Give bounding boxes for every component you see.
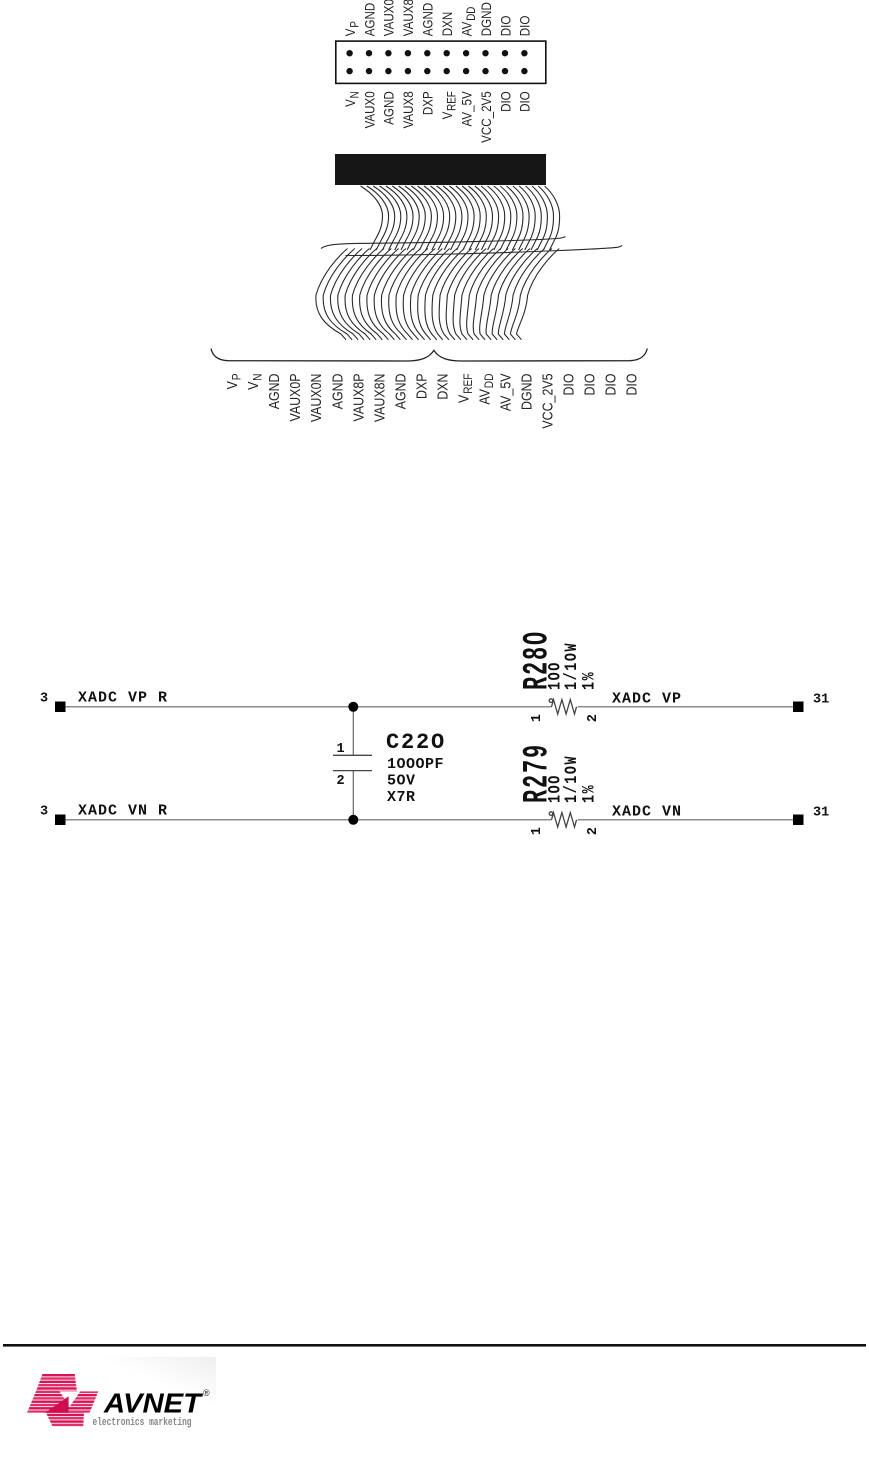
svg-text:VAUX0: VAUX0 (361, 91, 377, 128)
svg-text:VN: VN (342, 91, 362, 107)
svg-text:AV_5V: AV_5V (458, 91, 474, 127)
svg-text:1: 1 (530, 826, 545, 836)
svg-text:XADC VN R: XADC VN R (78, 803, 168, 820)
svg-text:VCC_2V5: VCC_2V5 (539, 373, 555, 428)
svg-text:C22O: C22O (386, 730, 446, 755)
svg-text:VAUX8N: VAUX8N (371, 374, 387, 423)
svg-text:2: 2 (586, 713, 601, 723)
svg-text:DIO: DIO (561, 374, 577, 396)
svg-text:DIO: DIO (603, 374, 619, 396)
svg-text:AGND: AGND (361, 3, 377, 36)
svg-text:1: 1 (337, 742, 345, 757)
svg-text:VCC_2V5: VCC_2V5 (478, 91, 494, 143)
svg-text:VREF: VREF (455, 373, 475, 403)
svg-text:31: 31 (813, 693, 829, 708)
svg-text:®: ® (203, 1388, 210, 1398)
svg-text:VREF: VREF (439, 91, 459, 119)
svg-text:AGND: AGND (381, 91, 397, 124)
svg-text:31: 31 (813, 806, 829, 821)
svg-text:DGND: DGND (518, 373, 534, 410)
svg-text:AGND: AGND (392, 373, 408, 409)
svg-text:1OOOPF: 1OOOPF (387, 756, 444, 773)
svg-text:DGND: DGND (478, 2, 494, 36)
svg-text:VAUX0N: VAUX0N (308, 374, 324, 423)
svg-text:VP: VP (224, 374, 244, 390)
svg-text:DIO: DIO (624, 374, 640, 396)
svg-text:2: 2 (586, 826, 601, 836)
svg-text:3: 3 (40, 692, 48, 707)
svg-text:XADC VP R: XADC VP R (78, 690, 168, 707)
svg-text:VAUX0: VAUX0 (381, 0, 397, 36)
svg-text:1%: 1% (579, 671, 599, 690)
svg-text:VAUX8: VAUX8 (400, 0, 416, 36)
svg-text:VAUX8P: VAUX8P (350, 374, 366, 422)
svg-text:electronics marketing: electronics marketing (93, 1417, 192, 1429)
svg-text:DIO: DIO (497, 16, 513, 37)
svg-text:1: 1 (530, 713, 545, 723)
svg-text:DIO: DIO (517, 16, 533, 37)
svg-text:DXP: DXP (420, 91, 436, 115)
svg-text:XADC VN: XADC VN (612, 804, 682, 821)
svg-text:5OV: 5OV (387, 773, 416, 790)
svg-text:AV_5V: AV_5V (497, 373, 513, 411)
svg-text:AGND: AGND (329, 373, 345, 409)
svg-text:DIO: DIO (582, 374, 598, 396)
svg-text:VAUX0P: VAUX0P (287, 374, 303, 422)
svg-text:1%: 1% (579, 784, 599, 803)
svg-text:X7R: X7R (387, 789, 416, 806)
svg-text:DIO: DIO (497, 91, 513, 112)
svg-text:3: 3 (40, 805, 48, 820)
svg-text:VN: VN (245, 374, 265, 390)
svg-text:2: 2 (337, 774, 345, 789)
svg-text:AVNET: AVNET (103, 1388, 204, 1419)
svg-text:AVDD: AVDD (476, 374, 496, 405)
svg-text:XADC VP: XADC VP (612, 691, 682, 708)
svg-text:AGND: AGND (420, 3, 436, 36)
svg-text:DXN: DXN (434, 374, 450, 400)
svg-text:DXP: DXP (413, 374, 429, 399)
svg-text:DIO: DIO (517, 91, 533, 112)
svg-text:AGND: AGND (266, 373, 282, 409)
svg-text:AVDD: AVDD (458, 6, 478, 36)
svg-text:DXN: DXN (439, 12, 455, 36)
svg-text:VAUX8: VAUX8 (400, 91, 416, 128)
svg-text:VP: VP (342, 21, 362, 36)
